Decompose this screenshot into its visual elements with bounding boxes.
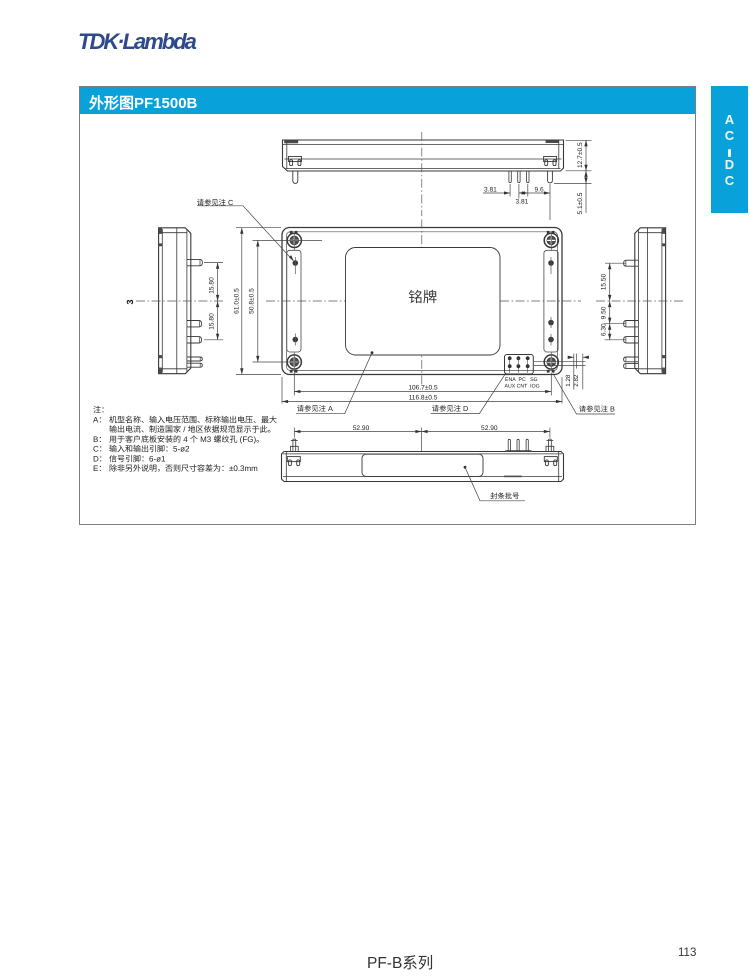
svg-text:输出电流、制造国家 / 地区依据规范显示于此。: 输出电流、制造国家 / 地区依据规范显示于此。 [109,425,276,434]
svg-text:5.1±0.5: 5.1±0.5 [577,192,584,214]
svg-text:6.30: 6.30 [601,323,608,336]
svg-text:D：: D： [93,454,107,463]
svg-text:请参见注 A: 请参见注 A [297,404,333,413]
svg-text:机型名称、输入电压范围、标称输出电压、最大: 机型名称、输入电压范围、标称输出电压、最大 [109,416,277,425]
svg-text:3.81: 3.81 [516,198,529,205]
svg-text:ENA PC SG: ENA PC SG [505,377,538,383]
svg-text:输入和输出引脚：5-ø2: 输入和输出引脚：5-ø2 [109,445,190,454]
svg-text:请参见注 B: 请参见注 B [579,405,615,414]
svg-text:15.80: 15.80 [208,277,215,294]
svg-text:106.7±0.5: 106.7±0.5 [408,385,438,392]
svg-text:封条批号: 封条批号 [490,492,519,501]
svg-text:铭牌: 铭牌 [408,289,437,306]
svg-text:3.81: 3.81 [484,186,497,193]
svg-text:请参见注 D: 请参见注 D [432,404,468,413]
svg-text:15.50: 15.50 [601,273,608,290]
svg-text:B：: B： [93,435,106,444]
svg-text:除非另外说明，否则尺寸容差为：±0.3mm: 除非另外说明，否则尺寸容差为：±0.3mm [109,464,258,473]
svg-text:52.90: 52.90 [353,425,370,432]
svg-text:信号引脚：6-ø1: 信号引脚：6-ø1 [109,454,166,463]
svg-text:3: 3 [125,299,135,304]
svg-text:15.80: 15.80 [208,313,215,330]
svg-text:C：: C： [93,445,107,454]
svg-text:E：: E： [93,464,106,473]
svg-text:1.28: 1.28 [565,374,572,387]
svg-text:61.0±0.5: 61.0±0.5 [233,288,240,314]
svg-text:9.50: 9.50 [601,306,608,319]
svg-text:9.6: 9.6 [535,186,544,193]
svg-text:注：: 注： [93,406,109,415]
svg-text:50.8±0.5: 50.8±0.5 [248,288,255,314]
svg-text:52.90: 52.90 [481,425,498,432]
svg-text:116.8±0.5: 116.8±0.5 [409,395,438,402]
svg-text:12.7±0.5: 12.7±0.5 [577,142,584,168]
svg-text:2.82: 2.82 [573,374,580,387]
svg-text:AUX CNT IOG: AUX CNT IOG [505,384,540,390]
svg-text:A：: A： [93,416,106,425]
svg-text:用于客户底板安装的 4 个 M3 螺纹孔 (FG)。: 用于客户底板安装的 4 个 M3 螺纹孔 (FG)。 [109,435,264,444]
